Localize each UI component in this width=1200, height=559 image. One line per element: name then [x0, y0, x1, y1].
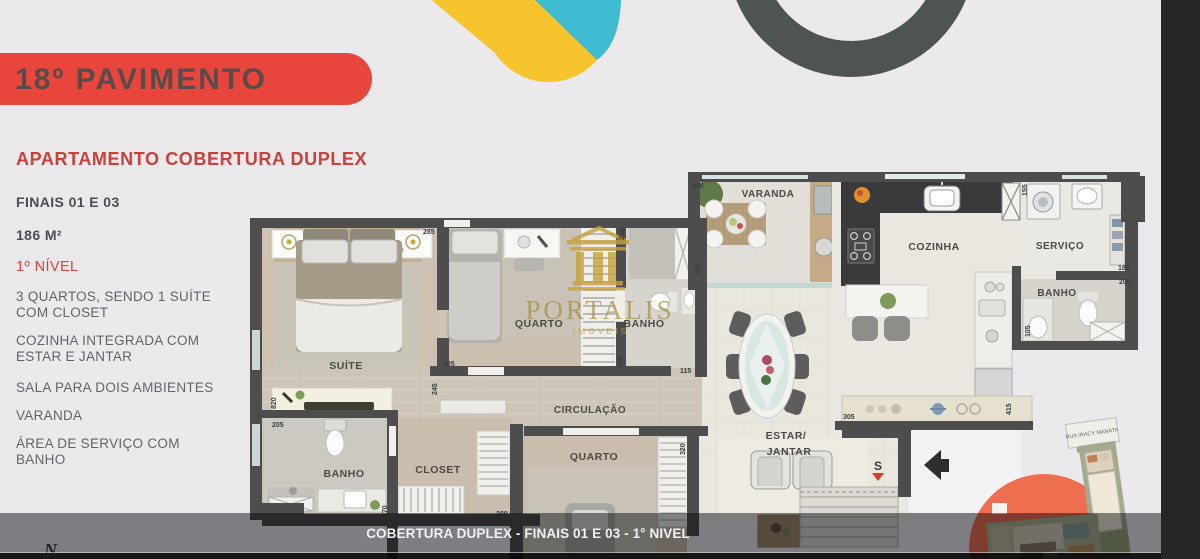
svg-text:SUÍTE: SUÍTE [329, 359, 362, 372]
svg-text:200: 200 [1119, 279, 1131, 286]
svg-text:SERVIÇO: SERVIÇO [1036, 241, 1084, 252]
svg-text:305: 305 [843, 414, 855, 421]
svg-text:820: 820 [271, 397, 278, 409]
svg-text:BANHO: BANHO [1037, 288, 1076, 299]
svg-text:255: 255 [619, 228, 626, 240]
svg-text:BANHO: BANHO [324, 468, 365, 480]
svg-text:QUARTO: QUARTO [515, 318, 563, 330]
svg-text:COZINHA: COZINHA [908, 241, 959, 253]
svg-text:305: 305 [443, 361, 455, 368]
svg-text:ESTAR/: ESTAR/ [766, 430, 807, 442]
svg-text:CLOSET: CLOSET [415, 464, 461, 476]
svg-text:205: 205 [272, 422, 284, 429]
svg-text:JANTAR: JANTAR [767, 446, 812, 458]
svg-text:BANHO: BANHO [624, 318, 665, 330]
svg-text:235: 235 [692, 183, 704, 190]
svg-text:255: 255 [617, 356, 624, 368]
svg-text:CIRCULAÇÃO: CIRCULAÇÃO [554, 403, 626, 416]
svg-text:105: 105 [1025, 325, 1032, 337]
svg-text:285: 285 [423, 229, 435, 236]
svg-text:QUARTO: QUARTO [570, 451, 618, 463]
svg-text:IMÓVEIS: IMÓVEIS [573, 326, 629, 336]
svg-text:165: 165 [695, 263, 702, 275]
svg-text:VARANDA: VARANDA [742, 189, 795, 200]
svg-text:115: 115 [680, 368, 691, 375]
svg-text:S: S [874, 459, 882, 473]
svg-text:155: 155 [1022, 184, 1029, 196]
svg-text:415: 415 [1006, 403, 1013, 415]
svg-text:185: 185 [1118, 265, 1130, 272]
svg-text:320: 320 [680, 443, 687, 455]
svg-text:245: 245 [432, 383, 439, 395]
